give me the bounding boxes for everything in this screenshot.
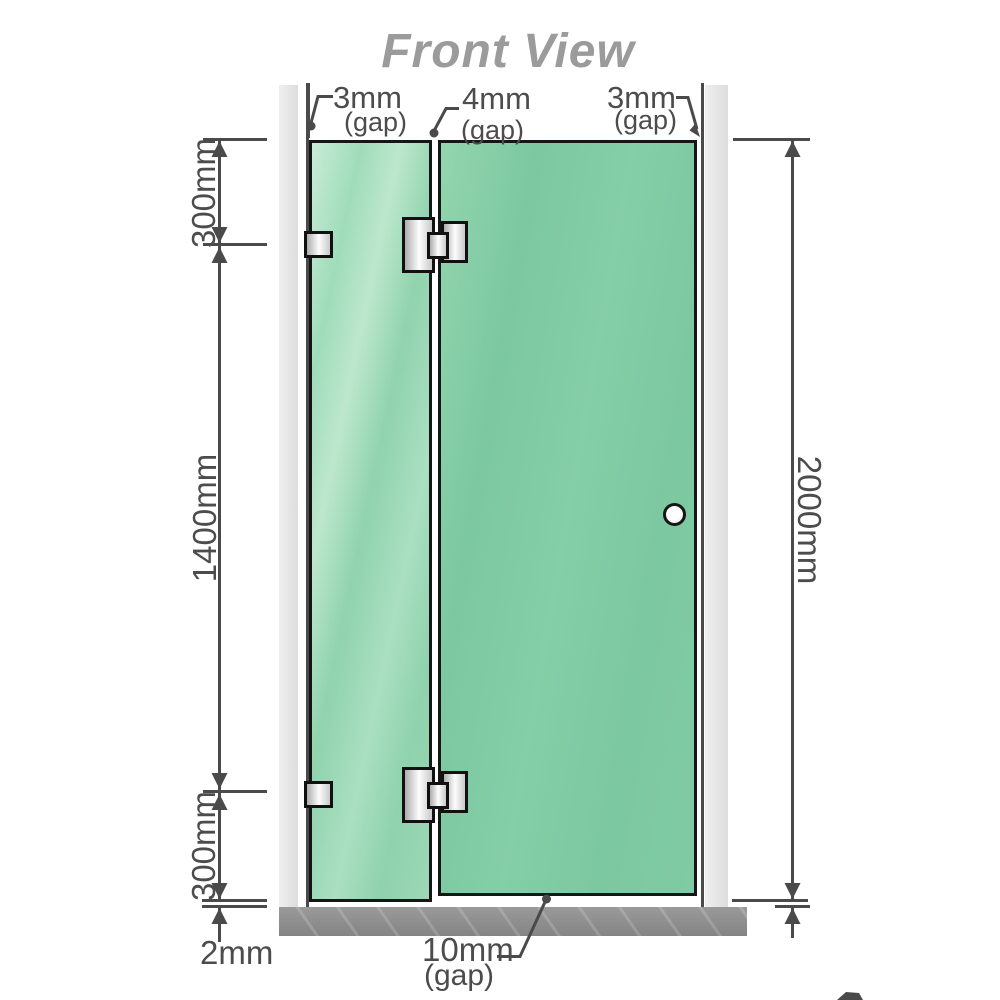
wall-bracket-bottom xyxy=(304,781,333,808)
dimension-300mm-top: 300mm xyxy=(185,138,223,248)
wall-bracket-top xyxy=(304,231,333,258)
left-wall xyxy=(279,85,298,907)
right-wall-inner-edge-line xyxy=(701,83,704,907)
dimension-10mm-qualifier: (gap) xyxy=(424,959,494,993)
watermark-fragment xyxy=(837,992,863,1000)
dimension-300mm-bottom: 300mm xyxy=(185,791,223,901)
dimension-1400mm: 1400mm xyxy=(186,454,224,582)
dimension-2000mm: 2000mm xyxy=(790,456,828,584)
door-knob-icon xyxy=(663,503,686,526)
right-wall xyxy=(705,85,728,907)
hinged-door-panel xyxy=(438,140,697,896)
gap-label-middle-value: 4mm xyxy=(462,81,531,117)
dimension-2mm: 2mm xyxy=(200,934,273,972)
page-title: Front View xyxy=(381,24,635,79)
gap-label-left-qualifier: (gap) xyxy=(344,107,407,138)
diagram-canvas: Front View xyxy=(0,0,1000,1000)
gap-label-middle-qualifier: (gap) xyxy=(461,115,524,146)
hinge-top-pin xyxy=(427,232,449,259)
hinge-bottom-pin xyxy=(427,782,449,809)
gap-label-right-qualifier: (gap) xyxy=(614,105,677,136)
